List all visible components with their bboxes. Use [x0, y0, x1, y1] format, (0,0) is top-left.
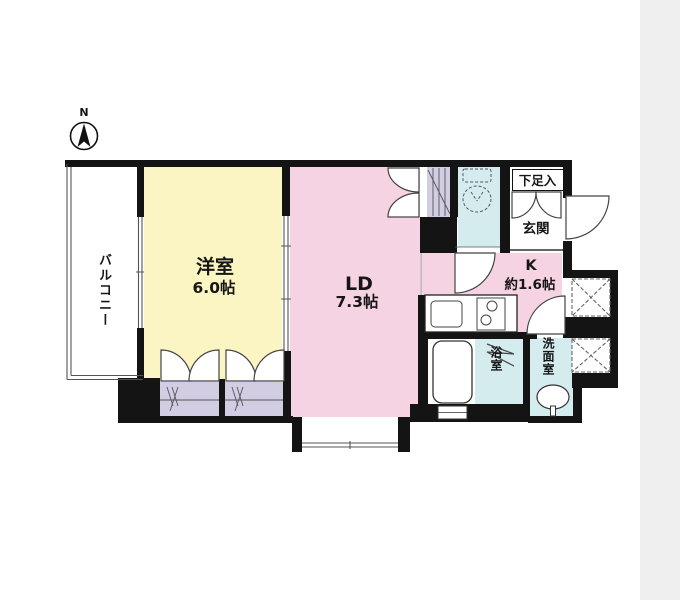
wall-toilet-right: [500, 160, 510, 253]
wall-between-shafts: [563, 317, 618, 338]
north-label: N: [79, 107, 88, 118]
wall-washroom-bottom: [528, 416, 582, 423]
shoe-storage-label: 下足入: [512, 169, 564, 191]
north-compass-icon: [71, 123, 98, 150]
floorplan-page: N バルコニー 洋室 6.0帖 LD 7.3帖 下足入 玄関 K 約1.6帖 浴…: [0, 0, 680, 600]
wall-partition-top: [282, 160, 290, 216]
bay-window-glass: [302, 441, 398, 449]
wall-toilet-south: [423, 243, 455, 253]
shoe-cabinet-door-right: [536, 192, 561, 218]
washbasin-faucet-icon: [551, 406, 556, 416]
entrance-door: [566, 196, 609, 239]
kitchen-label: K: [525, 259, 536, 274]
western-room-size: 6.0帖: [193, 281, 236, 297]
bathtub-icon: [433, 341, 472, 403]
wall-right-horizontal: [563, 270, 618, 278]
living-dining-label: LD: [345, 275, 373, 294]
stove-burner-icon: [481, 315, 491, 325]
wall-entry-right-upper: [563, 160, 572, 198]
kitchen-sink-icon: [431, 301, 462, 327]
page-margin-band: [640, 0, 680, 600]
stove-burner-icon: [487, 301, 497, 311]
balcony-label: バルコニー: [97, 253, 110, 328]
closet-b-floor: [225, 382, 285, 417]
washbasin-icon: [537, 385, 569, 409]
shoe-cabinet-door-left: [512, 192, 536, 218]
bath-window: [438, 406, 467, 419]
living-dining-size: 7.3帖: [336, 295, 379, 311]
wall-southwest-block: [118, 378, 160, 423]
toilet-room-floor: [458, 167, 500, 247]
wall-west-upper: [137, 160, 144, 217]
wall-west-lower: [137, 328, 144, 378]
wall-bath-washroom: [523, 338, 530, 404]
wall-kitchen-bath: [418, 332, 537, 339]
wall-closet-divider: [219, 379, 225, 417]
entrance-label: 玄関: [523, 223, 550, 237]
wall-closet-toilet: [450, 164, 458, 217]
window-west: [136, 217, 144, 328]
wall-bay-right: [398, 417, 410, 452]
sliding-partition: [281, 216, 291, 351]
wall-south-closets: [155, 416, 293, 423]
kitchen-size: 約1.6帖: [505, 279, 556, 293]
closet-a-floor: [160, 382, 220, 417]
wall-bay-left: [292, 417, 302, 452]
bathroom-label: 浴室: [490, 346, 502, 372]
washroom-label: 洗面室: [542, 337, 554, 376]
western-room-label: 洋室: [196, 258, 234, 277]
